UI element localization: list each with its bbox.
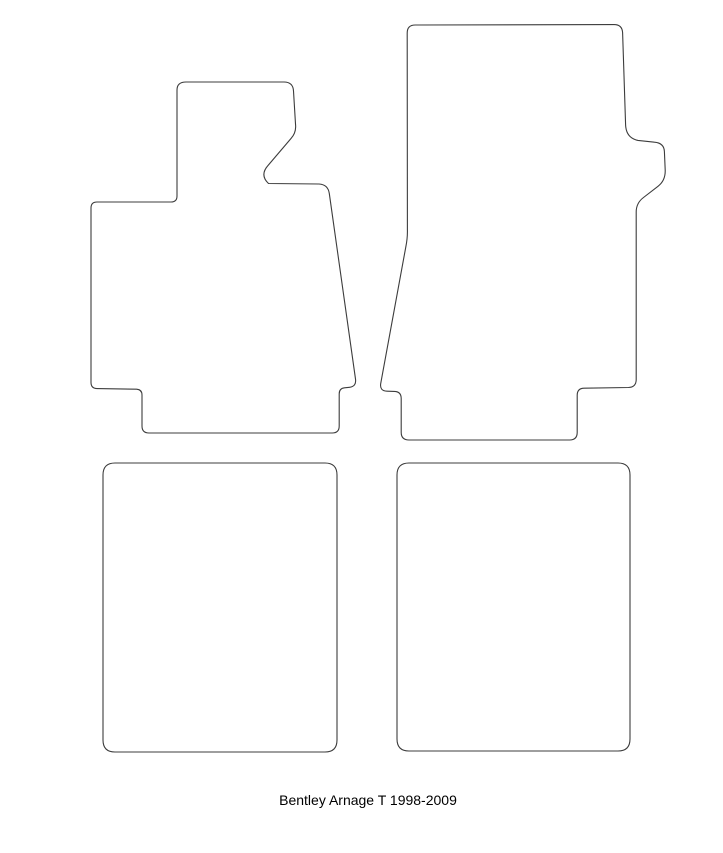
rear-right-mat-outline bbox=[397, 463, 630, 751]
front-left-mat-outline bbox=[91, 82, 356, 433]
front-right-mat-outline bbox=[381, 25, 666, 440]
caption: Bentley Arnage T 1998-2009 bbox=[279, 792, 457, 808]
mat-diagram bbox=[0, 0, 723, 853]
mat-template-sheet: Bentley Arnage T 1998-2009 bbox=[0, 0, 723, 853]
rear-left-mat-outline bbox=[103, 463, 337, 752]
